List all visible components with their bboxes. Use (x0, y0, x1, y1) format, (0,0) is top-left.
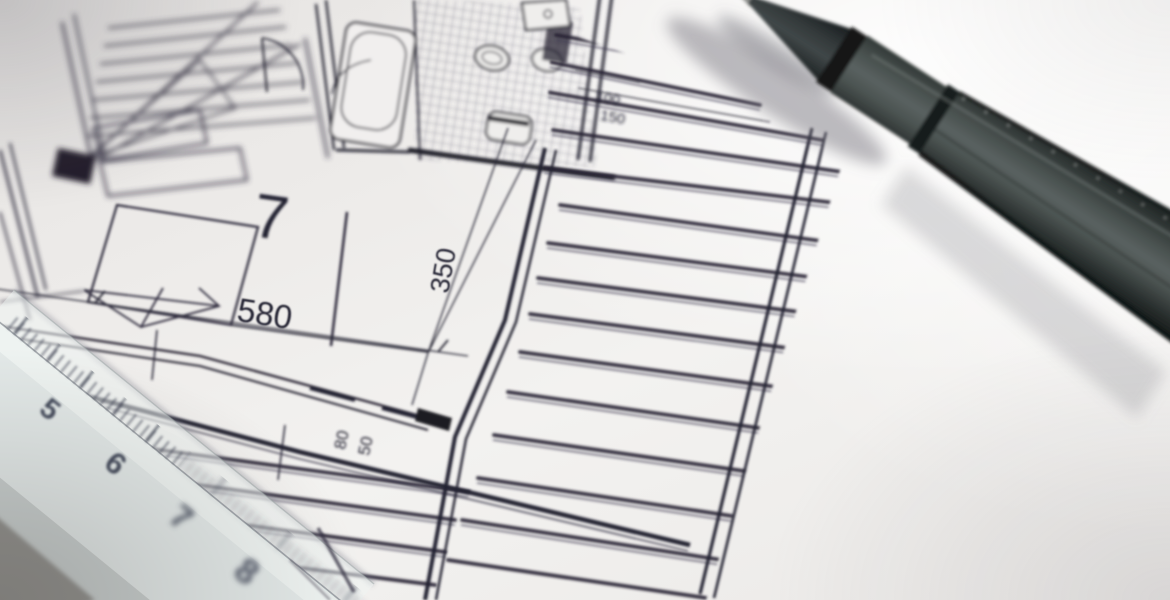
dimension-150-label: 150 (599, 107, 627, 128)
bidet (485, 111, 533, 146)
dimension-50-label: 50 (354, 435, 377, 457)
room-number-label: 7 (249, 181, 293, 254)
dimension-80-label: 80 (330, 429, 353, 451)
wall-center (425, 148, 545, 600)
bathtub (329, 21, 417, 148)
bed (88, 205, 258, 325)
dimension-350-label: 350 (424, 246, 461, 296)
washing-machine (522, 0, 570, 30)
bed-zigzag (84, 288, 219, 327)
photo-scene: 7 580 350 80 50 100 150 4 5 6 (0, 0, 1170, 600)
staircase (52, 2, 328, 196)
floor-plan-photo: 7 580 350 80 50 100 150 4 5 6 (0, 0, 1170, 600)
dimension-580-label: 580 (235, 291, 295, 336)
